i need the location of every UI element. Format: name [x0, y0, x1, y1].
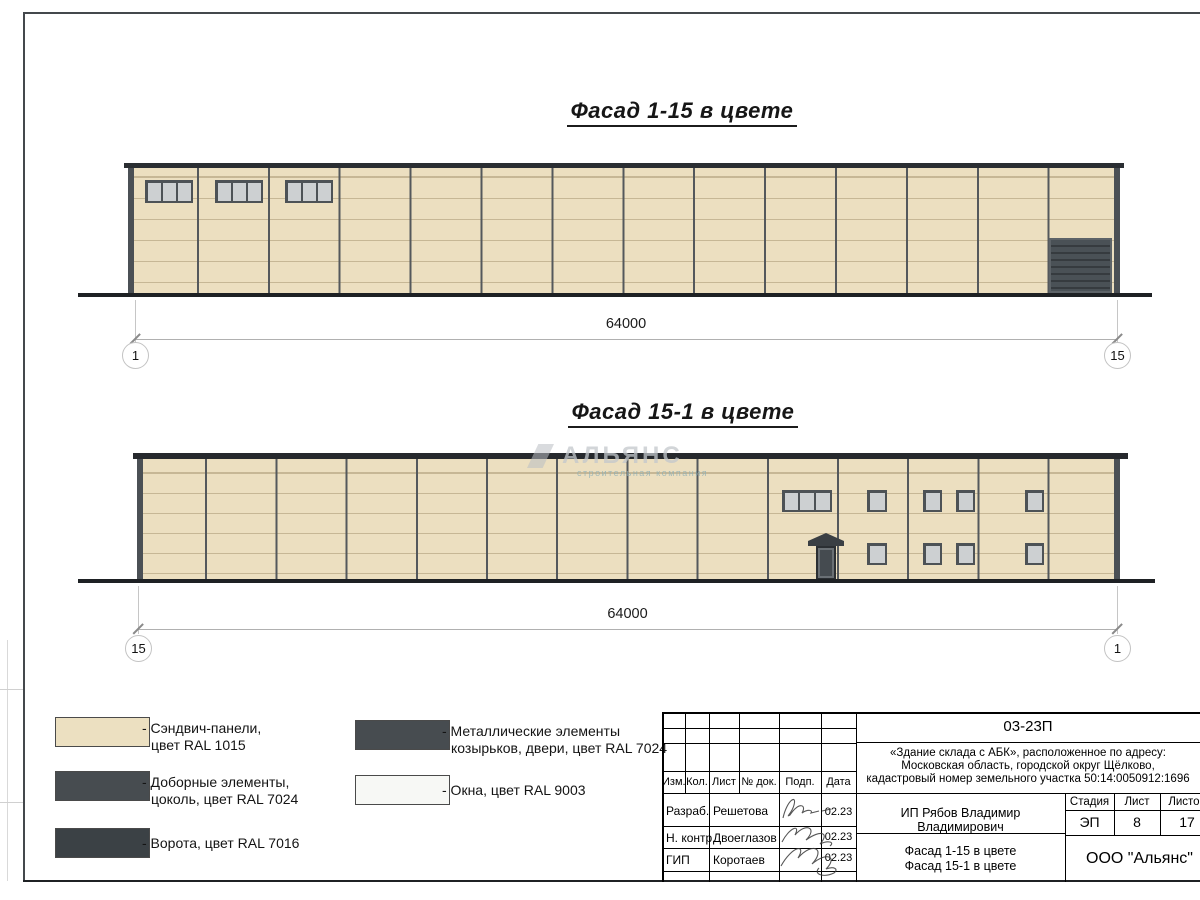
facade1-left-trim: [128, 168, 134, 295]
client-name: ИП Рябов Владимир Владимирович: [856, 806, 1065, 834]
drawing-sheet: Фасад 1-15 в цвете 64000 1 15 Фасад 15-1…: [0, 0, 1200, 900]
window-pane: [248, 183, 261, 201]
dimension-line: [135, 339, 1117, 340]
stamp-name: Решетова: [713, 804, 768, 818]
watermark-tagline: строительная компания: [577, 468, 708, 478]
stamp-name: Двоеглазов: [713, 831, 777, 845]
stamp-role: Н. контр.: [666, 831, 716, 845]
facade1-window: [145, 180, 193, 203]
column-header-data: Дата: [821, 776, 856, 788]
facade2-window: [867, 543, 887, 565]
facade1-window: [285, 180, 333, 203]
legend-swatch-sandwich-panels: [55, 717, 150, 747]
facade2-right-trim: [1114, 459, 1120, 580]
facade-15-1-title: Фасад 15-1 в цвете: [403, 399, 963, 425]
legend-swatch-plinth: [55, 771, 150, 801]
legend-label: - Доборные элементы,цоколь, цвет RAL 702…: [142, 774, 298, 808]
sheet-frame-left: [23, 12, 25, 882]
column-header-podp: Подп.: [779, 776, 821, 788]
column-header-izm: Изм.: [662, 776, 685, 788]
project-address-line: «Здание склада с АБК», расположенное по …: [856, 747, 1200, 760]
stamp-role: Разраб.: [666, 804, 709, 818]
sheet-subject-line: Фасад 1-15 в цвете: [856, 844, 1065, 859]
stamp-name: Коротаев: [713, 853, 765, 867]
column-header-kol: Кол.: [685, 776, 709, 788]
title-block-border: [662, 712, 664, 882]
sheet-frame-bottom: [23, 880, 1200, 882]
facade2-window: [1025, 490, 1044, 512]
facade1-ground-line: [78, 293, 1152, 297]
sheets-label: Листов: [1160, 796, 1200, 808]
title-block-border: [662, 712, 1200, 714]
facade2-window: [1025, 543, 1044, 565]
sheet-number: 8: [1114, 814, 1160, 830]
stage-value: ЭП: [1065, 814, 1114, 830]
facade1-wall: [128, 168, 1120, 295]
facade1-dimension-value: 64000: [135, 316, 1117, 332]
window-pane: [303, 183, 316, 201]
company-name: ООО "Альянс": [1065, 850, 1200, 868]
window-pane: [785, 493, 799, 510]
sheet-margin-divider: [0, 802, 23, 803]
window-pane: [288, 183, 301, 201]
project-address-line: кадастровый номер земельного участка 50:…: [856, 773, 1200, 786]
window-pane: [816, 493, 830, 510]
facade2-dimension-value: 64000: [138, 606, 1117, 622]
window-pane: [233, 183, 246, 201]
column-header-ndok: № док.: [739, 776, 779, 788]
stamp-role: ГИП: [666, 853, 690, 867]
legend-label: - Металлические элементыкозырьков, двери…: [442, 723, 667, 757]
signature-scribbles: [775, 792, 865, 880]
facade2-window: [782, 490, 832, 512]
window-pane: [218, 183, 231, 201]
window-pane: [178, 183, 191, 201]
legend-swatch-metal-elements: [355, 720, 450, 750]
legend-label: - Окна, цвет RAL 9003: [442, 782, 586, 799]
axis-marker-1: 1: [122, 342, 149, 369]
dimension-line: [138, 629, 1117, 630]
facade2-window: [867, 490, 887, 512]
column-header-list: Лист: [709, 776, 739, 788]
sheet-margin-divider: [0, 689, 23, 690]
facade1-gate: [1049, 238, 1112, 293]
window-pane: [800, 493, 814, 510]
sheet-label: Лист: [1114, 796, 1160, 808]
legend-swatch-gates: [55, 828, 150, 858]
legend-swatch-windows: [355, 775, 450, 805]
axis-marker-1: 1: [1104, 635, 1131, 662]
facade2-ground-line: [78, 579, 1155, 583]
project-address-line: Московская область, городской округ Щёлк…: [856, 760, 1200, 773]
dimension-extension-line: [1117, 300, 1118, 348]
facade1-window: [215, 180, 263, 203]
facade2-window: [956, 490, 975, 512]
facade1-right-trim: [1114, 168, 1120, 295]
sheet-frame-top: [23, 12, 1200, 14]
facade2-window: [923, 543, 942, 565]
window-pane: [148, 183, 161, 201]
project-code: 03-23П: [856, 718, 1200, 735]
window-pane: [163, 183, 176, 201]
window-pane: [318, 183, 331, 201]
facade2-left-trim: [137, 459, 143, 580]
axis-marker-15: 15: [125, 635, 152, 662]
sheet-subject-line: Фасад 15-1 в цвете: [856, 859, 1065, 874]
facade2-window: [956, 543, 975, 565]
facade-1-15-title: Фасад 1-15 в цвете: [402, 98, 962, 124]
legend-label: - Сэндвич-панели,цвет RAL 1015: [142, 720, 261, 754]
legend-label: - Ворота, цвет RAL 7016: [142, 835, 299, 852]
sheet-margin-line: [7, 640, 8, 881]
axis-marker-15: 15: [1104, 342, 1131, 369]
sheets-total: 17: [1160, 814, 1200, 830]
facade2-door: [816, 546, 836, 580]
watermark-name: АЛЬЯНС: [562, 442, 683, 470]
facade2-window: [923, 490, 942, 512]
stage-label: Стадия: [1065, 796, 1114, 808]
